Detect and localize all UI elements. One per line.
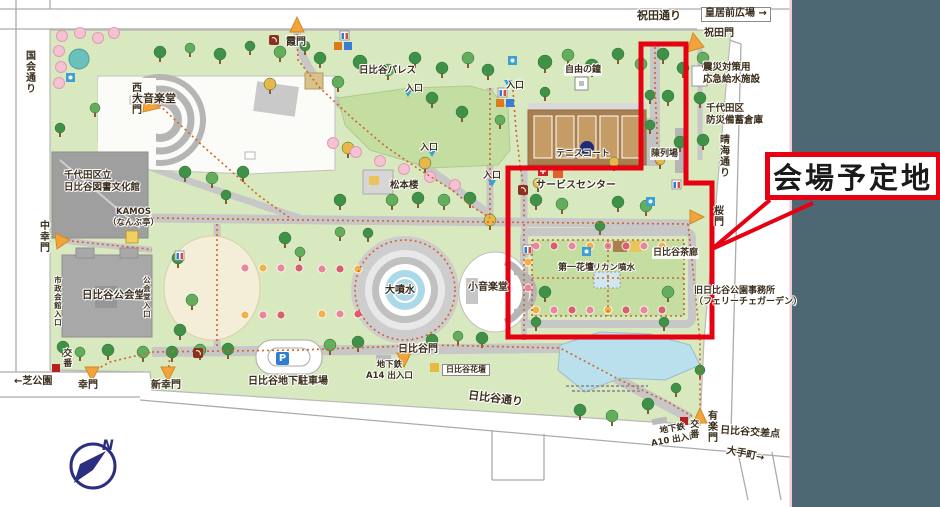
facility-label-display-area: 陳列場: [650, 149, 679, 160]
metro-label-a14: 地下鉄 A14 出入口: [366, 360, 413, 381]
phone-icon: [518, 185, 528, 195]
gate-label-iwaida: 祝田門: [704, 28, 734, 41]
gate-label-hibiya: 日比谷門: [398, 344, 438, 357]
gate-label-yuraku: 有楽門: [704, 410, 717, 443]
facility-label-hibiya-kadan: 日比谷花壇: [442, 364, 490, 376]
toilet-icon: [175, 251, 184, 260]
compass-north-label: N: [102, 438, 114, 454]
facility-label-underground-parking: 日比谷地下駐車場: [248, 376, 328, 389]
koban-icon: [52, 364, 60, 372]
facility-label-liberty-bell: 自由の鐘: [564, 65, 602, 76]
facility-label-great-fountain: 大噴水: [385, 285, 415, 298]
entrance-label: 入口: [506, 81, 524, 92]
road-label-harumi-dori: 晴海通り: [716, 134, 729, 178]
park-map: N 祝田通り 皇居前広場 → 祝田門 震災対策用 応急給水施設 千代田区 防災備…: [0, 0, 940, 507]
hibiya-palace-building: [305, 73, 323, 89]
underground-parking-ramp: [256, 340, 322, 374]
map-canvas: N: [0, 0, 940, 507]
facility-label-koban-south: 交番: [687, 419, 698, 439]
pelican-fountain-basin: [594, 272, 620, 288]
gate-label-sakura: 桜門: [710, 205, 723, 227]
parking-icon: P: [276, 352, 289, 365]
facility-label-hibiya-palace: 日比谷パレス: [359, 65, 416, 77]
facility-label-water-supply: 震災対策用 応急給水施設: [703, 62, 760, 86]
facility-label-tennis-court: テニスコート: [556, 149, 610, 160]
facility-label-matsumotoro: 松本楼: [390, 180, 419, 192]
entrance-label-shisei-kaikan: 市政会館入口: [53, 276, 62, 327]
facility-label-first-flowerbed: 第一花壇: [558, 263, 594, 274]
gate-label-naka-saiwai: 中幸門: [36, 220, 49, 253]
facility-label-service-center: サービスセンター: [536, 180, 616, 193]
gate-label-shin-saiwai: 新幸門: [151, 380, 181, 393]
gate-label-saiwai: 幸門: [78, 380, 98, 393]
facility-label-public-hall: 日比谷公会堂: [82, 289, 145, 302]
direction-kokyomae: 皇居前広場 →: [701, 7, 771, 22]
toilet-icon: [672, 180, 681, 189]
facility-label-kamos: KAMOS （なんぶ亭）: [108, 207, 159, 228]
fountain-pond: [69, 49, 89, 69]
gate-label-kasumi: 霞門: [286, 37, 306, 50]
shop-icon: [430, 363, 439, 372]
water-icon: [66, 73, 75, 82]
facility-label-storage: 千代田区 防災備蓄倉庫: [706, 103, 763, 127]
facility-label-small-concert-hall: 小音楽堂: [468, 282, 508, 295]
facility-label-large-concert-hall: 大音楽堂: [132, 92, 176, 106]
side-panel-band: [792, 0, 940, 507]
kamos-building: [126, 231, 138, 243]
toilet-icon: [523, 245, 532, 254]
toilet-icon: [340, 31, 349, 40]
road-label-iwaida-dori: 祝田通り: [637, 9, 681, 23]
phone-icon: [269, 35, 279, 45]
venue-callout: 会場予定地: [765, 152, 940, 200]
direction-shiba-koen: ←芝公園: [14, 376, 52, 389]
entrance-label-public-hall: 公会堂入口: [142, 276, 151, 319]
entrance-label: 入口: [483, 171, 501, 182]
facility-label-koban-west: 交番: [60, 348, 71, 368]
water-icon: [646, 197, 655, 206]
facility-label-hibiya-saro: 日比谷茶廊: [652, 248, 699, 259]
facility-label-library: 千代田区立 日比谷図書文化館: [64, 170, 140, 194]
water-icon: [582, 247, 591, 256]
entrance-label: 入口: [420, 143, 438, 154]
entrance-label: 入口: [405, 84, 423, 95]
facility-label-old-park-office: 旧日比谷公園事務所 （フェリーチェガーデン）: [694, 286, 802, 309]
water-icon: [508, 56, 517, 65]
phone-icon: [193, 348, 203, 358]
band-edge-line: [790, 0, 793, 507]
road-label-kokkai-dori: 国会通り: [22, 50, 35, 94]
